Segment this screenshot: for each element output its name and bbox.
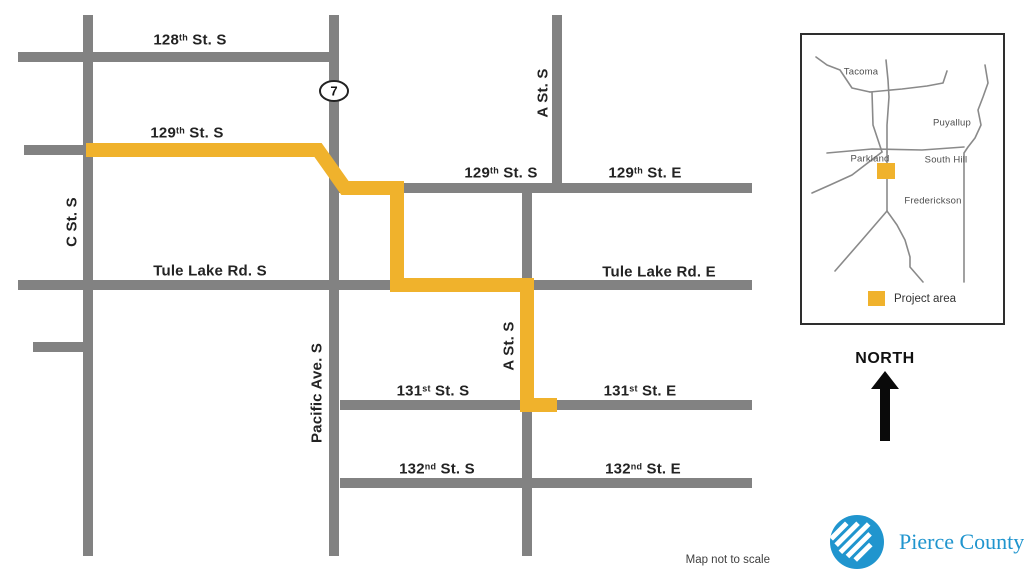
project-area-legend-swatch — [868, 291, 885, 306]
pierce-county-logo: Pierce County — [827, 512, 1024, 572]
inset-road-branch-southwest — [835, 211, 887, 271]
label-131st-st-s: 131st St. S — [397, 383, 470, 400]
inset-label-south-hill: South Hill — [925, 155, 968, 166]
inset-legend: Project area — [868, 291, 956, 306]
label-pacific-ave-s: Pacific Ave. S — [309, 343, 326, 443]
inset-label-parkland: Parkland — [850, 154, 889, 165]
label-129th-st-s: 129th St. S — [464, 165, 537, 182]
inset-road-east-horizontal — [870, 71, 947, 92]
label-132nd-st-s: 132nd St. S — [399, 461, 475, 478]
project-area-legend-label: Project area — [894, 293, 956, 305]
project-map-page: 7 128th St. S129th St. S129th St. S129th… — [0, 0, 1024, 580]
label-tule-lake-rd-s: Tule Lake Rd. S — [153, 263, 267, 280]
label-131st-st-e: 131st St. E — [604, 383, 677, 400]
label-129th-st-e: 129th St. E — [608, 165, 681, 182]
label-tule-lake-rd-e: Tule Lake Rd. E — [602, 264, 716, 281]
label-a-st-s-north: A St. S — [535, 68, 552, 117]
inset-road-sr7-upper — [886, 60, 889, 152]
inset-road-network — [802, 35, 1003, 323]
label-128th-st-s: 128th St. S — [153, 32, 226, 49]
label-c-st-s: C St. S — [64, 197, 81, 247]
pierce-county-logo-text: Pierce County — [899, 529, 1024, 555]
inset-road-left-vertical — [872, 92, 882, 152]
inset-label-tacoma: Tacoma — [844, 67, 878, 78]
label-132nd-st-e: 132nd St. E — [605, 461, 681, 478]
map-scale-note: Map not to scale — [650, 554, 770, 566]
label-129th-st-s-west: 129th St. S — [150, 125, 223, 142]
north-indicator: NORTH — [853, 350, 917, 443]
inset-label-puyallup: Puyallup — [933, 118, 971, 129]
north-arrow-icon — [871, 371, 899, 443]
inset-label-frederickson: Frederickson — [904, 196, 961, 207]
pierce-county-logo-icon — [827, 512, 887, 572]
inset-overview-map: TacomaPuyallupParklandSouth HillFrederic… — [800, 33, 1005, 325]
north-label: NORTH — [853, 350, 917, 368]
inset-road-south-hill-horizontal — [827, 147, 964, 153]
project-area-marker — [877, 163, 895, 179]
inset-road-puyallup-wavy — [964, 65, 988, 282]
label-a-st-s-south: A St. S — [501, 321, 518, 370]
inset-road-branch-southeast — [887, 211, 923, 282]
